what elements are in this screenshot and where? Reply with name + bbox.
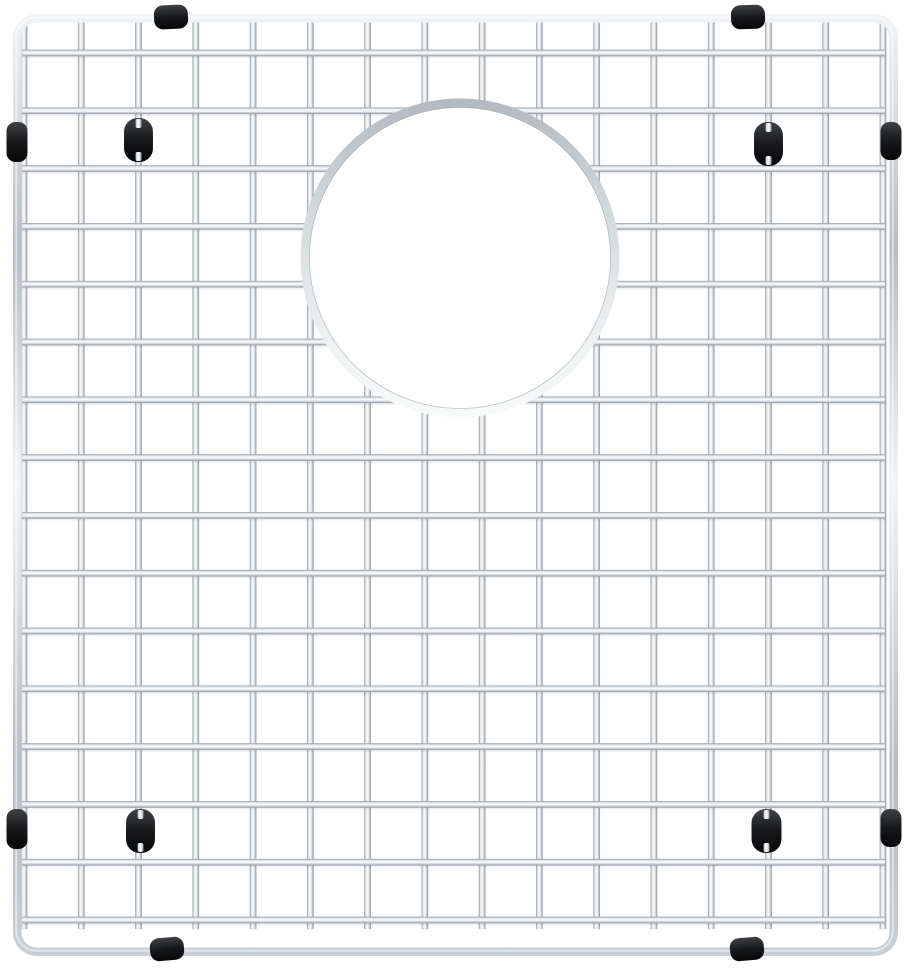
product-photo xyxy=(0,0,914,971)
grid-wire-vertical xyxy=(822,22,829,929)
grid-wire-horizontal xyxy=(22,859,885,866)
frame-bumper-left-1 xyxy=(7,122,28,162)
grid-wire-horizontal xyxy=(22,686,885,693)
frame-bumper-right-2 xyxy=(881,809,902,847)
frame-bumper-right-1 xyxy=(881,122,902,160)
grid-wire-shadow xyxy=(22,114,885,116)
grid-wire-horizontal xyxy=(22,628,885,635)
foot-wire-notch-top xyxy=(136,119,142,128)
grid-wire-shadow xyxy=(22,519,885,521)
grid-wire-horizontal xyxy=(22,570,885,577)
grid-wire-shadow xyxy=(22,576,885,578)
frame-bumper-bottom-2 xyxy=(729,936,765,962)
grid-wire-shadow xyxy=(22,461,885,463)
frame-bumper-top-1 xyxy=(153,4,188,30)
foot-wire-notch-bottom xyxy=(138,843,144,852)
grid-wire-shadow xyxy=(22,345,885,347)
foot-wire-notch-top xyxy=(138,810,144,819)
grid-wire-horizontal xyxy=(22,165,885,172)
grid-wire-horizontal xyxy=(22,801,885,808)
grid-wire-shadow xyxy=(22,865,885,867)
grid-wire-vertical xyxy=(307,22,314,929)
grid-wire-shadow xyxy=(22,56,885,58)
grid-wire-vertical xyxy=(593,22,600,929)
grid-wire-vertical xyxy=(78,22,85,929)
rubber-foot-bottom-left xyxy=(126,809,155,853)
grid-wire-shadow xyxy=(22,808,885,810)
rubber-foot-top-left xyxy=(124,118,153,162)
grid-wire-vertical xyxy=(364,22,371,929)
grid-wire-shadow xyxy=(22,230,885,232)
grid-wire-shadow xyxy=(22,750,885,752)
grid-wire-shadow xyxy=(22,923,885,925)
grid-wire-horizontal xyxy=(22,50,885,57)
grid-wire-shadow xyxy=(22,287,885,289)
frame-bumper-bottom-1 xyxy=(149,936,185,962)
grid-wire-vertical xyxy=(479,22,486,929)
grid-wire-vertical xyxy=(651,22,658,929)
frame-bumper-left-2 xyxy=(7,809,28,849)
rubber-foot-bottom-right xyxy=(752,809,782,853)
grid-wire-shadow xyxy=(22,403,885,405)
grid-wire-horizontal xyxy=(22,454,885,461)
foot-wire-notch-bottom xyxy=(766,156,772,165)
grid-wire-horizontal xyxy=(22,512,885,519)
grid-wire-vertical xyxy=(422,22,429,929)
grid-wire-vertical xyxy=(708,22,715,929)
grid-wire-horizontal xyxy=(22,223,885,230)
grid-wire-horizontal xyxy=(22,397,885,404)
grid-wire-vertical xyxy=(193,22,200,929)
grid-wire-shadow xyxy=(22,634,885,636)
foot-wire-notch-bottom xyxy=(764,843,770,852)
grid-wire-horizontal xyxy=(22,339,885,346)
sink-grid-image xyxy=(0,0,914,971)
grid-wire-shadow xyxy=(22,692,885,694)
grid-wire-vertical xyxy=(250,22,256,929)
foot-wire-notch-bottom xyxy=(136,152,142,161)
grid-wire-shadow xyxy=(22,172,885,174)
frame-bumper-top-2 xyxy=(731,4,766,29)
grid-wire-horizontal xyxy=(22,108,885,115)
grid-wire-horizontal xyxy=(22,281,885,288)
grid-wire-horizontal xyxy=(22,743,885,750)
foot-wire-notch-top xyxy=(764,810,770,819)
grid-wire-horizontal xyxy=(22,917,885,924)
grid-wire-vertical xyxy=(536,22,543,929)
foot-wire-notch-top xyxy=(766,123,772,132)
rubber-foot-top-right xyxy=(754,122,783,166)
